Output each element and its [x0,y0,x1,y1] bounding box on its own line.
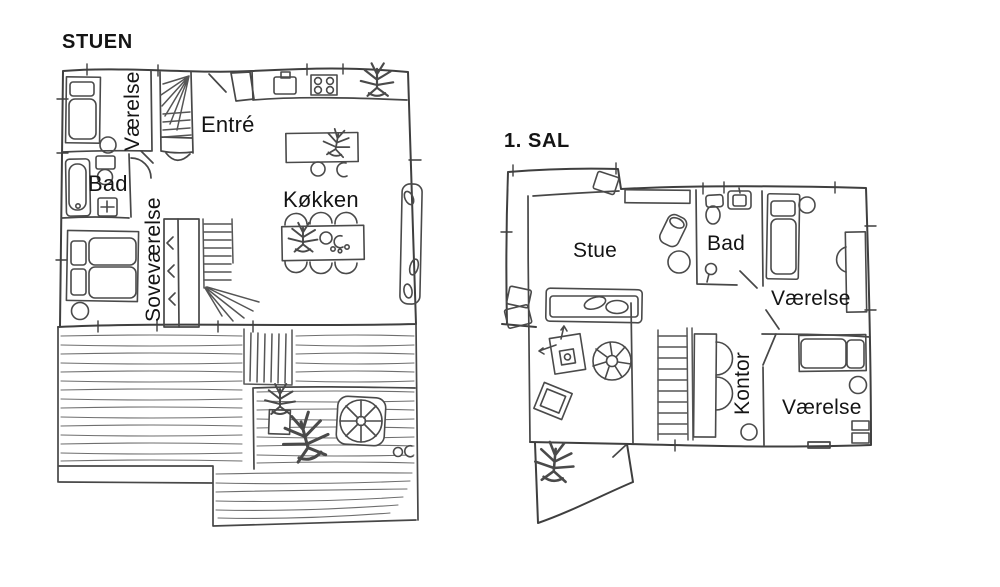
armchair [657,212,689,249]
toilet-bowl [706,206,720,224]
double-bed-mattress-2 [89,267,136,298]
rug-with-plant [549,334,585,374]
desk-chair [837,247,846,272]
bar-stool [311,162,325,176]
floor-drain [706,264,717,275]
sofa-seat [550,296,638,317]
bed-pillow [847,340,864,368]
terrace-planks-bottom [216,473,412,519]
first-floor-labels: 1. SAL Stue Bad Værelse Kontor Værelse [504,130,862,419]
stove-burners [315,78,334,94]
first-staircase [658,328,693,440]
ground-floor-title: STUEN [62,31,133,53]
bed-pillow [70,82,94,96]
label-bad-first: Bad [707,232,745,255]
main-staircase [203,219,259,321]
shelf-leaves-icon [402,190,420,299]
office-stool [741,424,757,440]
floor-drain-stem [707,274,709,282]
dining-chairs [285,212,357,273]
first-floor-title: 1. SAL [504,130,570,152]
bed-pillow [771,201,795,216]
footstool [534,382,572,419]
balcony-plant-icon [534,441,576,483]
office-desk [694,334,717,437]
label-kontor: Kontor [731,352,754,415]
entry-staircase [161,76,191,137]
washbasin-tap [101,201,114,212]
floorplan-page: STUEN Værelse Entré Bad Soveværelse Køkk… [0,0,1000,587]
ground-floor-plan: STUEN Værelse Entré Bad Soveværelse Køkk… [56,31,422,526]
wardrobe-divider [178,219,179,327]
sideboard [625,190,690,204]
label-stue: Stue [573,239,617,262]
bath-door-arc-icon [131,151,153,178]
label-vaerelse: Værelse [121,71,144,151]
ground-terrace [58,324,418,526]
first-floor-plan: 1. SAL Stue Bad Værelse Kontor Værelse [501,130,876,523]
bed-mattress [771,219,796,274]
bar-stool [337,163,347,177]
toilet [96,156,115,169]
bathtub-drain [76,204,80,208]
label-entre: Entré [201,112,255,137]
rug-arrows-icon [539,326,567,354]
stool [850,377,867,394]
washbasin-inner [733,195,746,206]
double-bed-pillow-2 [71,269,86,295]
sofa-pillow-oval [606,301,628,314]
label-koekken: Køkken [283,187,359,212]
entry-door-icon [209,72,254,101]
stool [799,197,815,213]
kitchen-sink [274,77,296,94]
side-table [668,251,690,273]
wardrobe-hangers [167,237,175,305]
washbasin-tap [739,188,740,193]
double-bed-pillow-1 [71,241,86,265]
stool [72,303,89,320]
double-bed-mattress-1 [89,238,136,265]
parasol-icon [340,400,382,442]
ground-room-vaerelse [66,77,116,153]
shelf [852,421,869,430]
label-vaerelse-front: Værelse [771,287,851,310]
label-bad: Bad [88,171,128,196]
terrace-planks-topright [296,335,414,382]
terrace-steps [244,329,292,385]
bed-mattress [69,99,96,139]
label-sovevaerelse: Soveværelse [142,197,165,322]
terrace-planks-left [61,335,242,461]
sofa-pillow-leaf [583,294,607,311]
bed-mattress [801,339,846,368]
table-cups [320,232,349,253]
first-room-vaerelse-back [799,335,869,443]
fan-chair [593,342,631,380]
label-vaerelse-back: Værelse [782,396,862,419]
first-balcony-deck [535,443,633,523]
floorplan-canvas: STUEN Værelse Entré Bad Soveværelse Køkk… [0,0,1000,587]
understairs-door-arc-icon [166,153,190,160]
shelf [852,433,869,443]
